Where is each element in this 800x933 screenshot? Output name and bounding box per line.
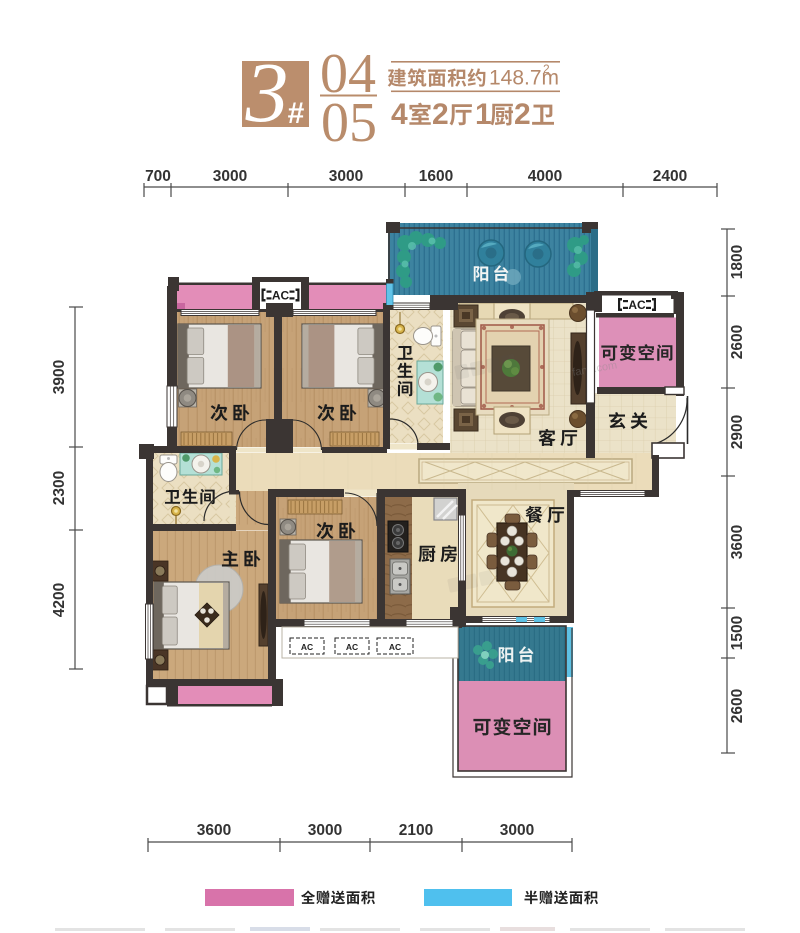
svg-text:2400: 2400	[653, 168, 687, 185]
svg-text:AC: AC	[389, 642, 401, 652]
svg-text:1800: 1800	[729, 245, 746, 279]
svg-text:#: #	[288, 97, 305, 130]
svg-text:AC: AC	[346, 642, 358, 652]
svg-text:2: 2	[432, 98, 449, 131]
svg-text:4200: 4200	[51, 583, 68, 617]
svg-text:3000: 3000	[329, 168, 363, 185]
svg-text:700: 700	[145, 168, 171, 185]
svg-text:2900: 2900	[729, 415, 746, 449]
svg-text:1600: 1600	[419, 168, 453, 185]
svg-text:2600: 2600	[729, 689, 746, 723]
svg-text:3600: 3600	[197, 822, 231, 839]
svg-text:2300: 2300	[51, 471, 68, 505]
svg-text:05: 05	[321, 92, 377, 154]
svg-text:2600: 2600	[729, 325, 746, 359]
svg-text:AC: AC	[301, 642, 313, 652]
svg-text:3000: 3000	[500, 822, 534, 839]
svg-text:2100: 2100	[399, 822, 433, 839]
svg-text:3000: 3000	[213, 168, 247, 185]
svg-text:4000: 4000	[528, 168, 562, 185]
svg-text:3900: 3900	[51, 360, 68, 394]
svg-text:3: 3	[245, 44, 289, 140]
svg-text:AC: AC	[628, 298, 646, 312]
svg-text:2: 2	[514, 98, 531, 131]
svg-text:4: 4	[391, 98, 408, 131]
svg-text:1500: 1500	[729, 616, 746, 650]
svg-text:1: 1	[475, 98, 492, 131]
svg-text:2: 2	[543, 62, 550, 76]
svg-text:3600: 3600	[729, 525, 746, 559]
svg-text:3000: 3000	[308, 822, 342, 839]
svg-text:AC: AC	[272, 289, 290, 303]
